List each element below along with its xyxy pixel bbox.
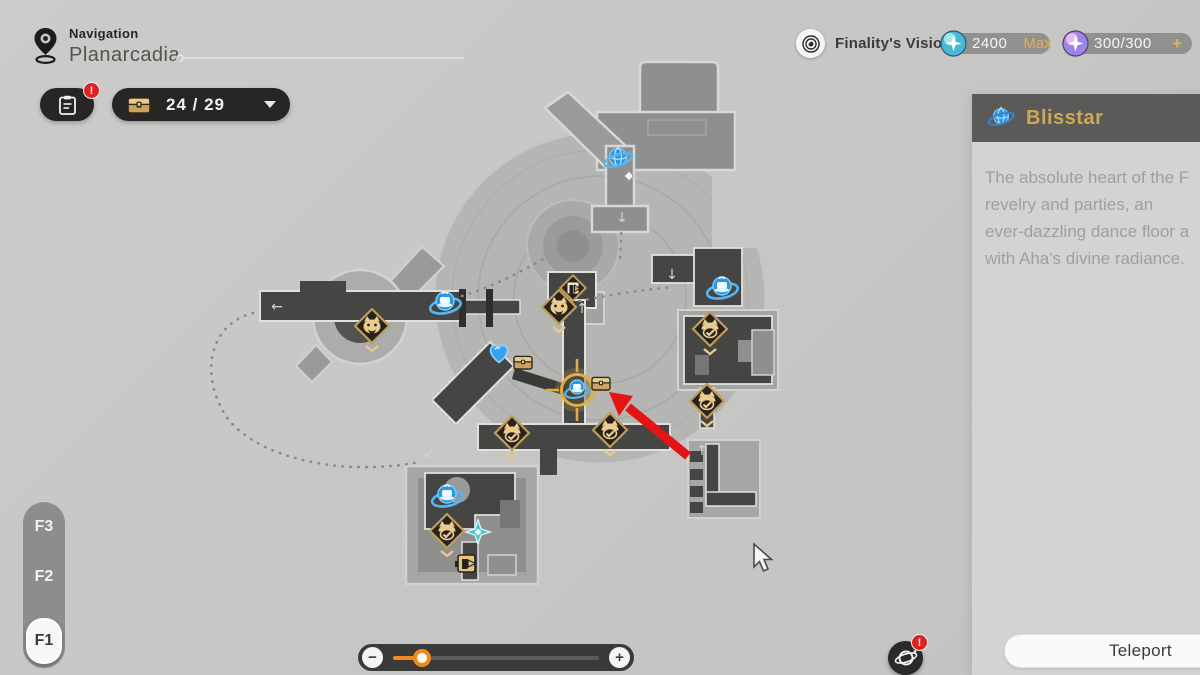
purple-orb-icon	[1062, 30, 1089, 57]
map-zoom-slider: − +	[358, 644, 634, 671]
chevron-down-icon	[264, 101, 276, 108]
map-marker-sparkle[interactable]	[464, 518, 492, 546]
floor-button-f3[interactable]: F3	[23, 518, 65, 536]
map-marker-white-diamond[interactable]	[623, 170, 636, 183]
floor-button-f1-selected[interactable]: F1	[26, 618, 62, 664]
map-marker-chest[interactable]	[513, 354, 533, 371]
map-direction-arrow: ↙	[423, 446, 435, 462]
location-name: Planarcadia	[69, 44, 180, 67]
map-marker-heart[interactable]	[485, 340, 513, 366]
panel-header: Blisstar ‹	[972, 94, 1200, 142]
journal-button[interactable]: !	[40, 88, 94, 121]
zoom-thumb[interactable]	[413, 649, 431, 667]
map-marker-monster-check[interactable]	[690, 311, 730, 357]
floor-button-f2[interactable]: F2	[23, 568, 65, 586]
map-marker-monster-check[interactable]	[687, 383, 727, 429]
currency-purple-value: 300/300	[1094, 35, 1152, 52]
map-marker-monster[interactable]	[352, 308, 392, 354]
vision-label: Finality's Vision	[835, 35, 952, 52]
journal-alert-badge: !	[83, 82, 100, 99]
currency-teal-pill[interactable]: 2400 Max	[944, 33, 1050, 54]
map-marker-anchor[interactable]	[704, 273, 740, 305]
map-marker-monster[interactable]	[539, 289, 579, 335]
finality-vision-button[interactable]	[796, 29, 825, 58]
map-direction-arrow: ←	[271, 299, 283, 315]
planet-alert-badge: !	[911, 634, 928, 651]
blisstar-icon	[986, 103, 1016, 133]
nav-header: Navigation Planarcadia	[32, 26, 180, 67]
panel-title: Blisstar	[1026, 107, 1103, 130]
desc-line: revelry and parties, an	[985, 191, 1200, 218]
mouse-cursor	[754, 544, 772, 571]
map-marker-chest[interactable]	[591, 375, 611, 392]
nav-label: Navigation	[69, 26, 180, 41]
chest-counter-dropdown[interactable]: 24 / 29	[112, 88, 290, 121]
chest-icon	[126, 94, 152, 116]
zoom-track[interactable]	[393, 656, 599, 660]
zoom-in-button[interactable]: +	[609, 647, 630, 668]
desc-line: with Aha's divine radiance.	[985, 245, 1200, 272]
floor-selector: F3 F2 F1	[23, 502, 65, 668]
location-info-panel: Blisstar ‹ The absolute heart of the F r…	[972, 94, 1200, 675]
decorative-line	[176, 54, 464, 62]
currency-teal-value: 2400	[972, 35, 1007, 52]
teal-orb-icon	[940, 30, 967, 57]
desc-line: ever-dazzling dance floor a	[985, 218, 1200, 245]
vision-group: Finality's Vision	[796, 29, 952, 58]
map-direction-arrow: ↓	[666, 267, 678, 283]
teleport-label: Teleport	[1109, 641, 1172, 661]
map-marker-anchor[interactable]	[427, 288, 463, 320]
game-map-screen: { "header": { "nav_label": "Navigation",…	[0, 0, 1200, 675]
map-marker-monster-check[interactable]	[492, 415, 532, 461]
map-marker-door[interactable]	[455, 552, 481, 576]
map-direction-arrow: ↑	[696, 443, 708, 459]
journal-icon	[59, 95, 76, 115]
currency-add-button[interactable]: +	[1172, 34, 1192, 54]
location-pin-icon	[32, 26, 59, 66]
desc-line: The absolute heart of the F	[985, 164, 1200, 191]
zoom-out-button[interactable]: −	[362, 647, 383, 668]
teleport-button[interactable]: Teleport	[1004, 634, 1200, 668]
chest-count-label: 24 / 29	[166, 95, 225, 115]
planet-icon	[894, 647, 918, 669]
currency-teal-max: Max	[1023, 35, 1051, 52]
currency-purple-pill[interactable]: 300/300 +	[1066, 33, 1192, 54]
map-marker-anchor[interactable]	[429, 481, 465, 513]
map-direction-arrow: ↓	[616, 210, 628, 226]
planet-view-button[interactable]: !	[888, 641, 923, 675]
eye-icon	[801, 34, 821, 54]
panel-description: The absolute heart of the F revelry and …	[972, 142, 1200, 272]
